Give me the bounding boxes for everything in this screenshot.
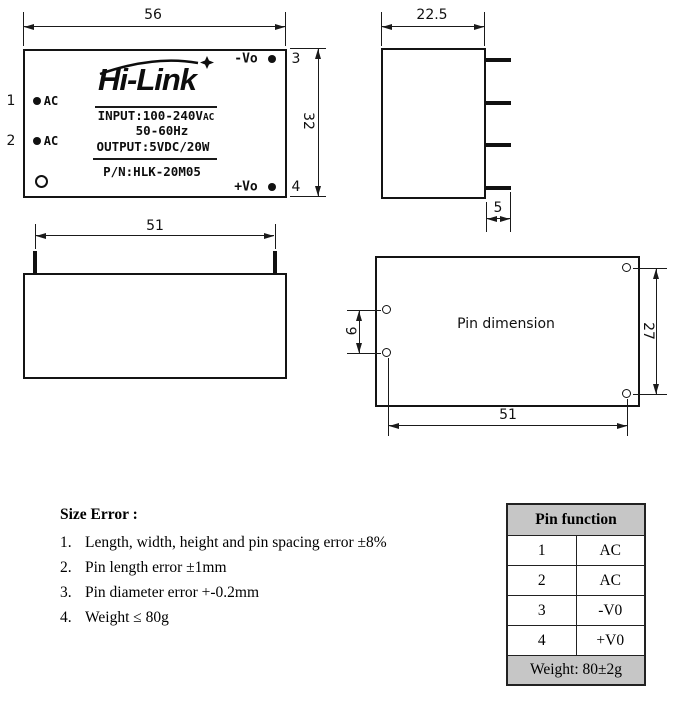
dim56-label: 56 [144, 8, 162, 22]
dim9-arrow-bottom [356, 343, 362, 353]
dim9-extension-bottom [347, 353, 381, 354]
dim56-arrow-right [275, 24, 285, 30]
part-number-line: P/N:HLK-20M05 [103, 166, 201, 179]
dim56-arrow-left [24, 24, 34, 30]
dim225-line [382, 26, 484, 27]
pin2-pad-dot [33, 137, 41, 145]
table-row: 4 +V0 [508, 626, 644, 656]
pin-hole-left-bottom [382, 348, 391, 357]
dim51b-arrow-right [617, 423, 627, 429]
dim5-extension-right [510, 192, 511, 232]
dim5-label: 5 [494, 201, 503, 215]
pin4-pad-dot [268, 183, 276, 191]
pin-table-row4-function: +V0 [577, 626, 645, 655]
size-error-section: Size Error : 1. Length, width, height an… [60, 506, 387, 630]
pin3-pad-dot [268, 55, 276, 63]
dim27-arrow-top [653, 269, 659, 279]
dim51b-line [389, 425, 627, 426]
dim51a-line [36, 235, 274, 236]
table-row: 2 AC [508, 566, 644, 596]
pos-vo-silkscreen-label: +Vo [234, 181, 257, 194]
dim27-label: 27 [641, 322, 655, 340]
pin-hole-right-bottom [622, 389, 631, 398]
dim225-arrow-right [474, 24, 484, 30]
pin-hole-left-top [382, 305, 391, 314]
bottom-view-pin-right [273, 251, 277, 275]
size-error-item-3: 3. Pin diameter error +-0.2mm [60, 580, 387, 605]
dim51a-label: 51 [146, 219, 164, 233]
pin-table-row1-pin: 1 [508, 536, 577, 565]
dim51b-label: 51 [499, 408, 517, 422]
table-row: 1 AC [508, 536, 644, 566]
pin-table-row2-function: AC [577, 566, 645, 595]
size-error-item-3-number: 3. [60, 580, 85, 605]
dim56-extension-right [285, 12, 286, 46]
dim5-arrow-right [500, 216, 510, 222]
size-error-item-4-text: Weight ≤ 80g [85, 605, 169, 630]
pin2-silkscreen-label: AC [44, 135, 58, 147]
dim32-arrow-top [315, 49, 321, 59]
pn-divider-line [93, 158, 217, 160]
frequency-line: 50-60Hz [136, 125, 189, 138]
pin3-number: 3 [292, 52, 301, 66]
bottom-view-outline [23, 273, 287, 379]
dim32-extension-bottom [290, 196, 326, 197]
pin1-pad-dot [33, 97, 41, 105]
input-rating-ac-suffix: AC [203, 112, 214, 123]
size-error-item-2: 2. Pin length error ±1mm [60, 555, 387, 580]
dim51a-extension-right [275, 224, 276, 249]
dim51b-extension-right [627, 399, 628, 436]
pin-hole-right-top [622, 263, 631, 272]
dim225-arrow-left [382, 24, 392, 30]
dim9-arrow-top [356, 311, 362, 321]
size-error-item-4: 4. Weight ≤ 80g [60, 605, 387, 630]
table-row: 3 -V0 [508, 596, 644, 626]
bottom-view-pin-left [33, 251, 37, 275]
size-error-item-2-number: 2. [60, 555, 85, 580]
dim225-label: 22.5 [416, 8, 447, 22]
neg-vo-silkscreen-label: -Vo [234, 53, 257, 66]
dim27-line [656, 269, 657, 394]
side-pin-2 [485, 101, 511, 105]
technical-drawing-page: 56 32 1 2 3 4 AC AC -Vo +Vo Hi-Link INPU… [0, 0, 680, 711]
size-error-item-1: 1. Length, width, height and pin spacing… [60, 530, 387, 555]
size-error-item-1-number: 1. [60, 530, 85, 555]
pin-table-weight-footer: Weight: 80±2g [508, 656, 644, 684]
hilink-logo: Hi-Link [96, 56, 226, 104]
pin-table-header: Pin function [508, 505, 644, 536]
input-rating-line: INPUT:100-240VAC [98, 110, 215, 123]
dim9-extension-top [347, 310, 381, 311]
size-error-item-2-text: Pin length error ±1mm [85, 555, 227, 580]
mounting-hole-circle [35, 175, 48, 188]
dim32-label: 32 [301, 112, 315, 130]
side-view-outline [381, 48, 486, 199]
size-error-item-1-text: Length, width, height and pin spacing er… [85, 530, 387, 555]
dim51b-arrow-left [389, 423, 399, 429]
pin-dimension-title: Pin dimension [457, 316, 555, 332]
dim27-extension-top [633, 268, 667, 269]
side-pin-1 [485, 58, 511, 62]
dim5-arrow-left [487, 216, 497, 222]
dim51a-arrow-right [264, 233, 274, 239]
pin-table-row4-pin: 4 [508, 626, 577, 655]
dim56-line [24, 26, 285, 27]
side-pin-4 [485, 186, 511, 190]
dim51a-arrow-left [36, 233, 46, 239]
input-rating-main: INPUT:100-240V [98, 108, 203, 123]
size-error-heading: Size Error : [60, 506, 387, 524]
logo-text: Hi-Link [98, 64, 196, 95]
pin-function-table: Pin function 1 AC 2 AC 3 -V0 4 +V0 Weigh… [506, 503, 646, 686]
output-rating-line: OUTPUT:5VDC/20W [97, 141, 210, 154]
dim27-extension-bottom [633, 394, 667, 395]
dim225-extension-right [484, 12, 485, 46]
dim32-line [318, 49, 319, 196]
pin4-number: 4 [292, 180, 301, 194]
pin-table-row1-function: AC [577, 536, 645, 565]
size-error-item-3-text: Pin diameter error +-0.2mm [85, 580, 259, 605]
dim27-arrow-bottom [653, 384, 659, 394]
pin1-silkscreen-label: AC [44, 95, 58, 107]
size-error-item-4-number: 4. [60, 605, 85, 630]
pin2-number: 2 [7, 134, 16, 148]
dim32-arrow-bottom [315, 186, 321, 196]
side-pin-3 [485, 143, 511, 147]
pin-table-row3-pin: 3 [508, 596, 577, 625]
dim9-label: 9 [343, 327, 357, 336]
pin1-number: 1 [7, 94, 16, 108]
pin-table-row3-function: -V0 [577, 596, 645, 625]
pin-table-row2-pin: 2 [508, 566, 577, 595]
